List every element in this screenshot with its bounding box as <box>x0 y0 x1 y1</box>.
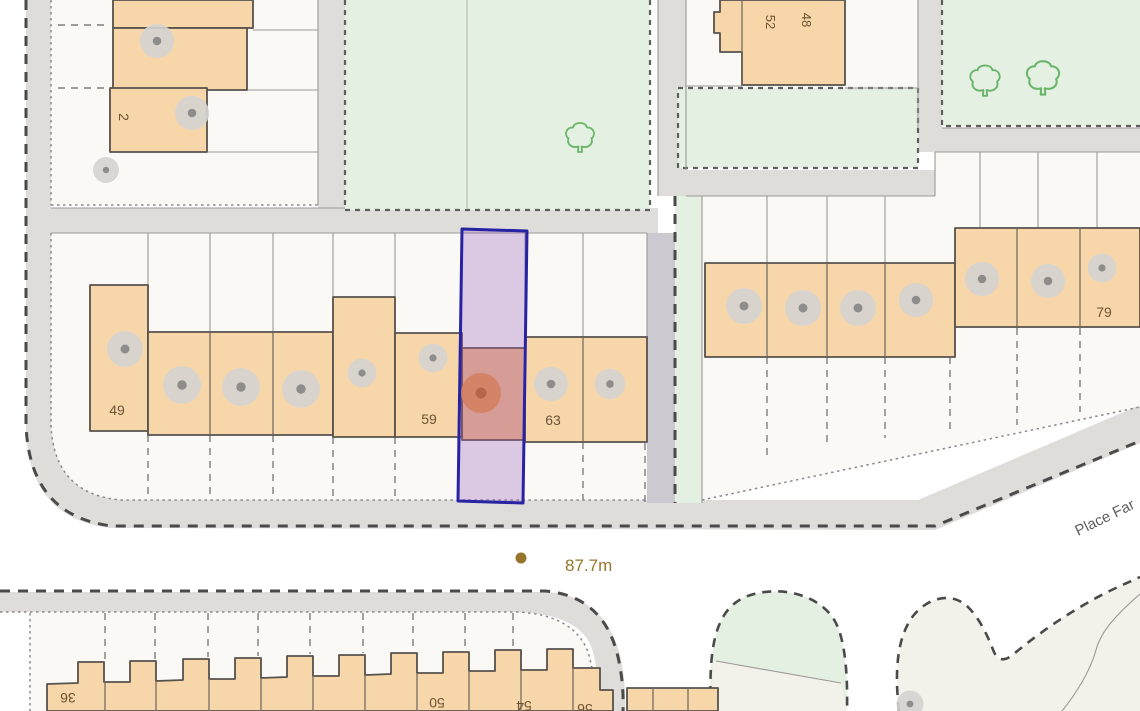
canopy-icon <box>965 262 999 296</box>
canopy-icon <box>785 290 821 326</box>
building-2-top <box>113 0 253 28</box>
house-number-52: 52 <box>763 15 778 29</box>
green-strip-48-52 <box>678 88 918 168</box>
spot-height-label: 87.7m <box>565 556 612 575</box>
canopy-icon <box>348 359 377 388</box>
canopy-icon <box>140 24 174 58</box>
house-number-48: 48 <box>799 13 814 27</box>
green-top-middle <box>345 0 650 210</box>
canopy-icon <box>282 370 320 408</box>
green-top-right <box>942 0 1140 126</box>
house-number-49: 49 <box>109 402 125 418</box>
canopy-icon <box>726 288 762 324</box>
canopy-icon <box>595 369 626 400</box>
canopy-icon <box>1088 254 1117 283</box>
house-number-36: 36 <box>60 690 76 706</box>
house-number-63: 63 <box>545 412 561 428</box>
house-number-54: 54 <box>516 698 532 711</box>
house-number-56: 56 <box>577 701 593 711</box>
canopy-icon <box>163 366 201 404</box>
house-number-79: 79 <box>1096 304 1112 320</box>
canopy-icon <box>222 368 260 406</box>
green-strip-vertical <box>675 196 702 503</box>
road-middle-horizontal <box>51 208 658 233</box>
house-number-50: 50 <box>429 695 445 711</box>
selected-plot[interactable] <box>458 229 527 503</box>
spot-height-dot <box>516 553 527 564</box>
house-number-2: 2 <box>116 113 132 121</box>
canopy-icon <box>93 157 119 183</box>
canopy-icon <box>419 344 448 373</box>
building-bottom-right <box>627 688 718 711</box>
building-2-mid <box>113 28 247 90</box>
map-canvas: 2 52 48 49 59 63 79 36 50 54 56 87.7m Pl… <box>0 0 1140 711</box>
canopy-icon <box>107 331 143 367</box>
house-number-59: 59 <box>421 411 437 427</box>
road-top-left-vertical <box>318 0 345 210</box>
site-plan-map: 2 52 48 49 59 63 79 36 50 54 56 87.7m Pl… <box>0 0 1140 711</box>
canopy-icon <box>1031 264 1065 298</box>
selected-plot-house-tint <box>462 348 523 440</box>
driveway-strip <box>647 233 675 503</box>
canopy-icon <box>534 367 568 401</box>
canopy-icon <box>899 283 933 317</box>
canopy-icon <box>175 96 209 130</box>
canopy-icon <box>840 290 876 326</box>
